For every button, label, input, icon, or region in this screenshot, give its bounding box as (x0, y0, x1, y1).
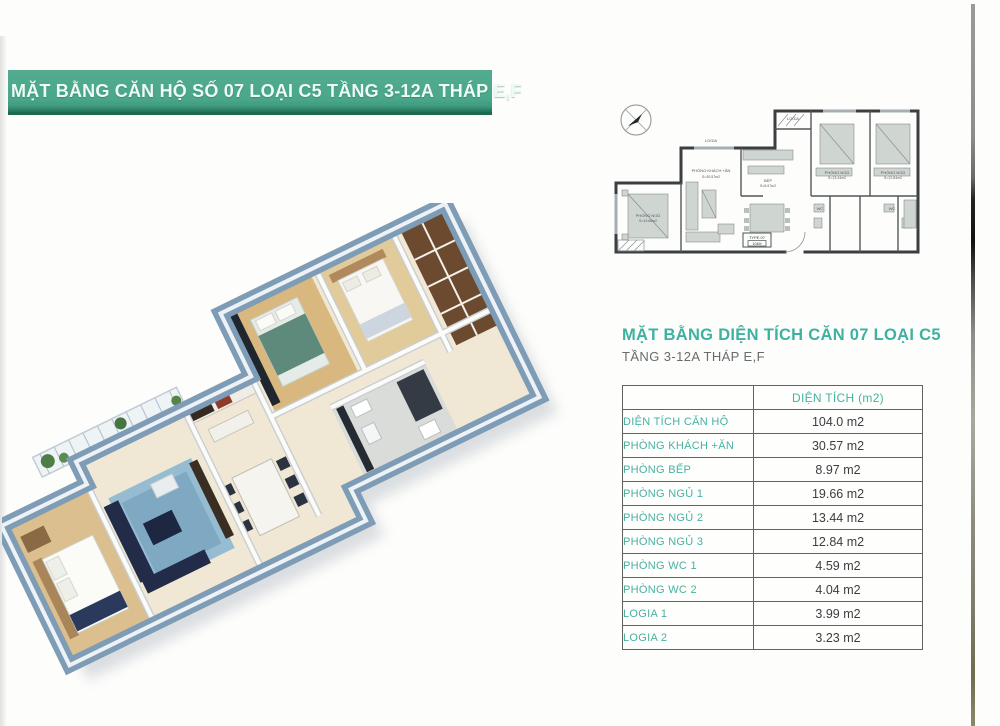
room-area-value: 19.66 m2 (754, 482, 923, 506)
room-area-value: 8.97 m2 (754, 458, 923, 482)
room-name: LOGIA 1 (623, 602, 754, 626)
entrance-door-arc (785, 232, 805, 252)
room-name: LOGIA 2 (623, 626, 754, 650)
label-wc2: WC (889, 206, 896, 211)
room-name: PHÒNG NGỦ 1 (623, 482, 754, 506)
floorplan-2d: LOGIA PHÒNG KHÁCH +ĂN S=30.57m2 BẾP S=8.… (598, 86, 946, 262)
room-name: PHÒNG BẾP (623, 458, 754, 482)
table-row: PHÒNG NGỦ 312.84 m2 (623, 530, 923, 554)
area-table: DIỆN TÍCH (m2) DIỆN TÍCH CĂN HỘ104.0 m2P… (622, 385, 923, 650)
label-bedroom3-area: S=12.84m2 (884, 176, 902, 180)
header-empty-cell (623, 386, 754, 410)
area-table-body: DIỆN TÍCH CĂN HỘ104.0 m2PHÒNG KHÁCH +ĂN3… (623, 410, 923, 650)
table-row: PHÒNG NGỦ 213.44 m2 (623, 506, 923, 530)
room-area-value: 3.99 m2 (754, 602, 923, 626)
room-area-value: 30.57 m2 (754, 434, 923, 458)
room-area-value: 4.59 m2 (754, 554, 923, 578)
header-area-cell: DIỆN TÍCH (m2) (754, 386, 923, 410)
label-logia-2: LOGIA (787, 116, 800, 121)
label-bedroom2-area: S=13.44m2 (828, 176, 846, 180)
table-row: PHÒNG KHÁCH +ĂN30.57 m2 (623, 434, 923, 458)
room-name: PHÒNG NGỦ 2 (623, 506, 754, 530)
label-bedroom1: PHÒNG NGỦ (636, 213, 661, 218)
label-logia-1: LOGIA (705, 138, 718, 143)
label-wc1: WC (817, 206, 824, 211)
room-name: DIỆN TÍCH CĂN HỘ (623, 410, 754, 434)
page-title: MẶT BẰNG DIỆN TÍCH CĂN 07 LOẠI C5 (622, 326, 941, 345)
label-bedroom2: PHÒNG NGỦ (825, 170, 850, 175)
label-bedroom1-area: S=19.66m2 (639, 219, 657, 223)
floorplan-3d (2, 203, 567, 708)
table-header-row: DIỆN TÍCH (m2) (623, 386, 923, 410)
binding-edge (971, 4, 975, 726)
table-row: LOGIA 23.23 m2 (623, 626, 923, 650)
table-row: PHÒNG WC 24.04 m2 (623, 578, 923, 602)
type-line1: TYPE 07 (749, 235, 766, 240)
page-subtitle: TẦNG 3-12A THÁP E,F (622, 349, 765, 364)
table-row: DIỆN TÍCH CĂN HỘ104.0 m2 (623, 410, 923, 434)
label-bedroom3: PHÒNG NGỦ (881, 170, 906, 175)
room-area-value: 12.84 m2 (754, 530, 923, 554)
label-kitchen: BẾP (764, 178, 772, 183)
table-row: PHÒNG NGỦ 119.66 m2 (623, 482, 923, 506)
banner: MẶT BẰNG CĂN HỘ SỐ 07 LOẠI C5 TẦNG 3-12A… (8, 70, 492, 115)
type-line2: 104M (753, 242, 762, 246)
banner-title: MẶT BẰNG CĂN HỘ SỐ 07 LOẠI C5 TẦNG 3-12A… (11, 81, 522, 102)
label-living-area: S=30.57m2 (702, 175, 720, 179)
room-name: PHÒNG WC 1 (623, 554, 754, 578)
room-name: PHÒNG NGỦ 3 (623, 530, 754, 554)
room-area-value: 3.23 m2 (754, 626, 923, 650)
table-row: PHÒNG WC 14.59 m2 (623, 554, 923, 578)
label-kitchen-area: S=8.97m2 (760, 184, 776, 188)
room-name: PHÒNG WC 2 (623, 578, 754, 602)
compass-icon (621, 105, 651, 135)
room-area-value: 4.04 m2 (754, 578, 923, 602)
room-area-value: 104.0 m2 (754, 410, 923, 434)
type-label-box: TYPE 07 104M (743, 233, 771, 247)
table-row: LOGIA 13.99 m2 (623, 602, 923, 626)
room-name: PHÒNG KHÁCH +ĂN (623, 434, 754, 458)
label-living: PHÒNG KHÁCH +ĂN (692, 168, 731, 173)
table-row: PHÒNG BẾP8.97 m2 (623, 458, 923, 482)
room-area-value: 13.44 m2 (754, 506, 923, 530)
